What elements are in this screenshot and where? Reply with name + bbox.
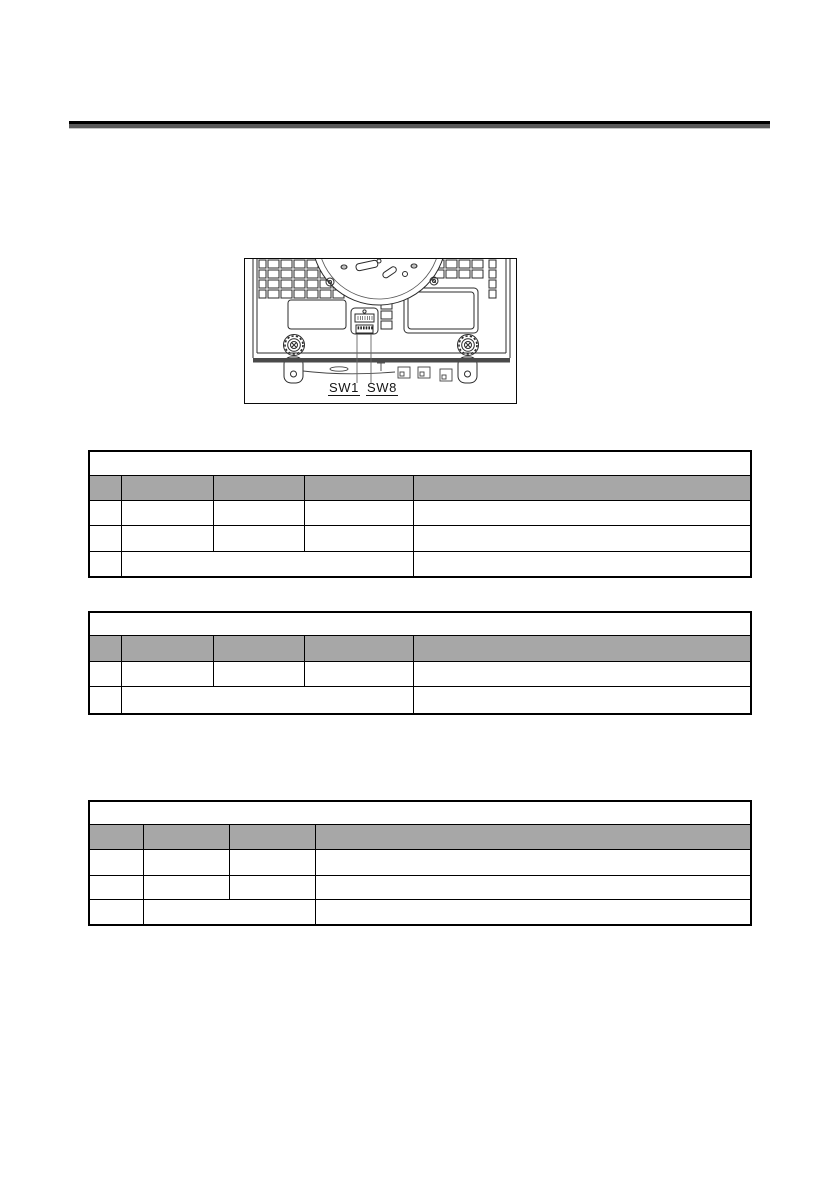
table-data-row: [89, 525, 751, 551]
table-cell: [413, 686, 751, 714]
rule-light-band: [69, 128, 770, 129]
table-header-cell: [143, 824, 229, 849]
table-title-cell: [89, 451, 751, 475]
dip-switch-table-3: [88, 800, 752, 926]
table-cell: [89, 500, 121, 525]
table-cell: [413, 551, 751, 577]
table-cell: [229, 875, 315, 899]
table-cell: [315, 849, 751, 875]
table-cell-merged: [121, 686, 413, 714]
table-cell: [143, 875, 229, 899]
table-data-row: [89, 551, 751, 577]
sw1-label: SW1: [328, 381, 360, 396]
table-cell: [229, 849, 315, 875]
table-header-cell: [413, 635, 751, 661]
table-cell: [121, 525, 213, 551]
table-data-row: [89, 500, 751, 525]
table-data-row: [89, 849, 751, 875]
table-title-cell: [89, 801, 751, 824]
table-cell: [304, 500, 413, 525]
table-cell-merged: [121, 551, 413, 577]
table-data-row: [89, 686, 751, 714]
table-title-row: [89, 612, 751, 635]
table-cell: [304, 661, 413, 686]
table-title-row: [89, 451, 751, 475]
table-header-cell: [89, 475, 121, 500]
table-header-row: [89, 475, 751, 500]
dip-switch-table-2: [88, 611, 752, 715]
table-cell: [413, 661, 751, 686]
table-cell: [89, 551, 121, 577]
table-cell: [121, 661, 213, 686]
table-header-cell: [89, 824, 143, 849]
table-title-row: [89, 801, 751, 824]
device-rear-view-figure: SW1 SW8: [244, 258, 517, 404]
table-cell: [213, 500, 304, 525]
table-cell: [315, 899, 751, 925]
table-header-cell: [213, 475, 304, 500]
table-cell: [213, 661, 304, 686]
table-header-cell: [213, 635, 304, 661]
table-cell: [315, 875, 751, 899]
table-title-cell: [89, 612, 751, 635]
table-header-cell: [304, 475, 413, 500]
table-cell: [413, 500, 751, 525]
table-cell: [89, 875, 143, 899]
table-cell: [304, 525, 413, 551]
section-divider-rule: [69, 121, 770, 129]
table-cell: [213, 525, 304, 551]
table-header-cell: [229, 824, 315, 849]
document-page: SW1 SW8: [0, 0, 839, 1190]
sw8-label: SW8: [366, 381, 398, 396]
table-data-row: [89, 875, 751, 899]
table-cell: [413, 525, 751, 551]
table-cell: [89, 899, 143, 925]
table-cell: [89, 686, 121, 714]
table-cell-merged: [143, 899, 315, 925]
table-cell: [121, 500, 213, 525]
table-cell: [89, 661, 121, 686]
table-cell: [89, 525, 121, 551]
table-data-row: [89, 899, 751, 925]
table-cell: [89, 849, 143, 875]
table-cell: [143, 849, 229, 875]
table-header-cell: [315, 824, 751, 849]
table-header-row: [89, 635, 751, 661]
table-header-cell: [121, 635, 213, 661]
table-header-cell: [121, 475, 213, 500]
dip-switch-table-1: [88, 450, 752, 578]
table-header-cell: [413, 475, 751, 500]
table-data-row: [89, 661, 751, 686]
table-header-row: [89, 824, 751, 849]
table-header-cell: [89, 635, 121, 661]
table-header-cell: [304, 635, 413, 661]
